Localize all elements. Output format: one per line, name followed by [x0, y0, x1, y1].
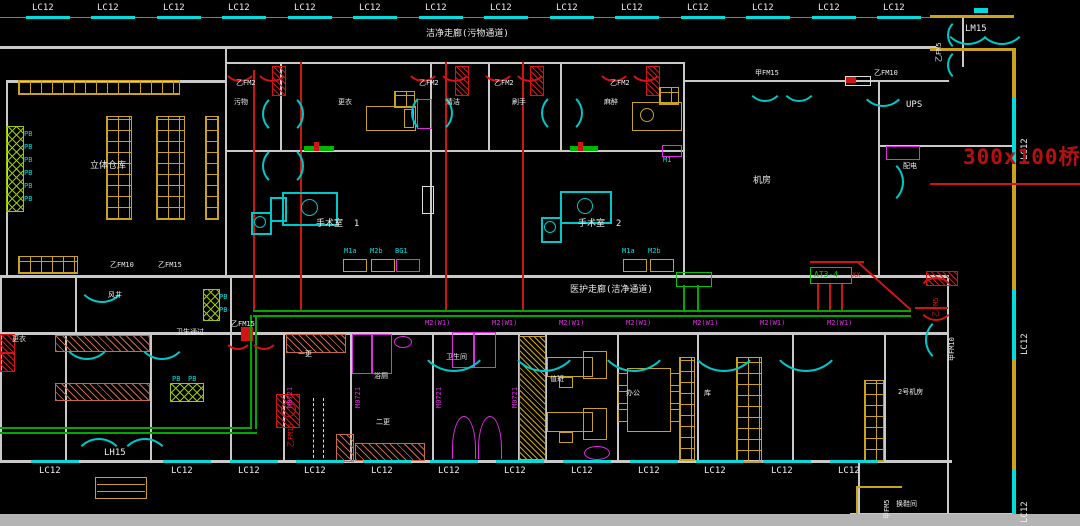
wall: [884, 335, 886, 462]
door-label: 乙FM5: [936, 42, 943, 62]
window-glyph: [26, 16, 70, 19]
door-code: M2(W1): [827, 320, 852, 327]
door-label: 乙FM2: [494, 80, 514, 87]
threshold-mark: [570, 146, 598, 151]
door-label: 乙FM2: [419, 80, 439, 87]
window-glyph: [830, 460, 878, 463]
door-arc: [686, 296, 762, 372]
door-label: 乙FM2: [236, 80, 256, 87]
window-label: LC12: [621, 4, 643, 13]
window-label: LC12: [818, 4, 840, 13]
chair: [618, 373, 628, 386]
window-label: LC12: [438, 467, 460, 476]
swing-door: [262, 93, 304, 135]
door-label: 乙FM5: [933, 297, 940, 317]
corridor-label: 医护走廊(洁净通道): [570, 286, 653, 295]
door-code: M0721: [287, 387, 294, 408]
room-label: 值班: [550, 376, 564, 383]
locker-row: [55, 383, 150, 401]
window-glyph: [696, 460, 744, 463]
sink: [394, 336, 412, 348]
wall-yellow: [856, 486, 858, 515]
window-label: LC12: [771, 467, 793, 476]
pass-window: [343, 259, 367, 272]
cable-tray: [0, 427, 252, 429]
pump-equipment: [203, 289, 220, 321]
wall: [683, 62, 685, 277]
shelf-rack: [736, 357, 762, 463]
window-glyph: [230, 460, 278, 463]
window-glyph: [163, 460, 211, 463]
fire-door-arc: [405, 46, 441, 82]
corridor-label: 洁净走廊(污物通道): [426, 30, 509, 39]
door-code: M0721: [436, 387, 443, 408]
window-glyph: [746, 16, 790, 19]
cable-tray: [683, 285, 685, 312]
room-label: 机房: [753, 177, 771, 186]
red-circuit-line: [930, 183, 1080, 185]
window-label: LC12: [838, 467, 860, 476]
room-label: 配电: [903, 163, 917, 170]
window: [1012, 470, 1016, 514]
window-glyph: [496, 460, 544, 463]
door-arc: [61, 308, 113, 360]
door-arc: [780, 64, 818, 102]
shelf-rack: [156, 116, 185, 220]
locker-row: [336, 434, 354, 462]
window-glyph: [484, 16, 528, 19]
room-label: 清洁: [446, 99, 460, 106]
electrical-box: [886, 146, 920, 160]
door-code: M0721: [355, 387, 362, 408]
red-circuit-line: [841, 283, 843, 311]
door-label: 乙FM2: [610, 80, 630, 87]
room-label: 手术室 1: [316, 220, 359, 229]
window-glyph: [288, 16, 332, 19]
window-glyph: [615, 16, 659, 19]
floorplan-canvas: LC12LC12LC12LC12LC12LC12LC12LC12LC12LC12…: [0, 0, 1080, 526]
room-label: 一更: [298, 351, 312, 358]
equipment-code: BG1: [395, 248, 408, 255]
window-label: LC12: [97, 4, 119, 13]
window-label: LC12: [556, 4, 578, 13]
door-arc: [976, 0, 1028, 45]
window-label: LC12: [687, 4, 709, 13]
entrance-label: LM15: [965, 25, 987, 34]
entrance-steps: [97, 491, 145, 492]
window-label: LC12: [39, 467, 61, 476]
fire-door-arc: [437, 46, 473, 82]
shelf-rack: [18, 256, 78, 274]
bed: [640, 108, 654, 122]
door-code: M2(W1): [693, 320, 718, 327]
pump-equipment: [170, 383, 204, 402]
equipment-code: PB: [188, 376, 196, 383]
room-label: 麻醉: [604, 99, 618, 106]
door-arc: [856, 158, 904, 206]
cable-tray: [0, 432, 257, 434]
door-arc: [768, 296, 844, 372]
window-label: LC12: [371, 467, 393, 476]
room-label: 2号机房: [898, 389, 923, 396]
room-label: 立体仓库: [90, 162, 126, 171]
door-label: 乙FM10: [110, 262, 134, 269]
door-arc: [947, 48, 981, 82]
equipment-code: M1a: [622, 248, 635, 255]
equipment-code: PB: [24, 131, 32, 138]
window-label: LC12: [504, 467, 526, 476]
fire-door-arc: [596, 46, 632, 82]
window-glyph: [812, 16, 856, 19]
door-label: 乙FM10: [874, 70, 898, 77]
fire-hydrant: [0, 353, 15, 372]
fire-door-arc: [628, 46, 664, 82]
pass-window: [371, 259, 395, 272]
door-label: 乙FM15: [158, 262, 182, 269]
shower-stall: [452, 416, 476, 459]
red-circuit-line: [300, 62, 302, 312]
room-label: 风井: [108, 292, 122, 299]
locker-row: [355, 443, 425, 461]
window-glyph: [430, 460, 478, 463]
desk: [583, 408, 607, 440]
equipment-code: M1a: [344, 248, 357, 255]
threshold-mark: [314, 142, 319, 151]
fire-door-arc: [480, 46, 516, 82]
fire-door-arc: [512, 46, 548, 82]
room-label: 浴厕: [374, 373, 388, 380]
window-label: LC12: [304, 467, 326, 476]
threshold-mark: [578, 142, 583, 151]
window-glyph: [31, 460, 79, 463]
threshold-mark: [304, 146, 334, 151]
window-label: LC12: [1021, 501, 1030, 523]
image-border-band: [0, 514, 1080, 526]
window-glyph: [91, 16, 135, 19]
conference-table: [627, 368, 671, 432]
door-arc: [119, 438, 171, 490]
fire-door-arc: [254, 46, 290, 82]
wall-yellow: [856, 486, 902, 488]
room-label: 卫生间: [446, 354, 467, 361]
swing-door: [541, 92, 583, 134]
window-glyph: [222, 16, 266, 19]
door-mark: [974, 8, 988, 13]
room-label: 更衣: [338, 99, 352, 106]
entrance-label: LH15: [104, 449, 126, 458]
room-label: 刷手: [512, 99, 526, 106]
window-label: LC12: [171, 467, 193, 476]
window-glyph: [550, 16, 594, 19]
chair: [559, 432, 573, 443]
window: [1012, 290, 1016, 360]
door-code: M2(W1): [559, 320, 584, 327]
window-label: LC12: [490, 4, 512, 13]
shelf-rack: [18, 80, 180, 95]
fire-door-arc: [222, 46, 258, 82]
room-label: 二更: [376, 419, 390, 426]
operating-table: [577, 198, 593, 214]
door-leaf: [422, 186, 434, 214]
pass-window: [623, 259, 647, 272]
window-glyph: [630, 460, 678, 463]
swing-door: [262, 145, 304, 187]
locker-row: [286, 334, 346, 353]
equipment-code: M2b: [648, 248, 661, 255]
window-glyph: [296, 460, 344, 463]
pump-equipment: [6, 126, 24, 212]
window-glyph: [877, 16, 921, 19]
bench-line: [323, 398, 325, 458]
window-label: LC12: [425, 4, 447, 13]
room-label: 卫生通过: [176, 329, 204, 336]
window-label: LC12: [704, 467, 726, 476]
pass-window: [396, 259, 420, 272]
window-label: LC12: [1021, 333, 1030, 355]
equipment-code: M2b: [370, 248, 383, 255]
toilet-stall: [352, 334, 372, 374]
shower-stall: [478, 416, 502, 459]
door-code: M2(W1): [760, 320, 785, 327]
equipment-code: PB: [172, 376, 180, 383]
equipment-code: M1: [663, 157, 671, 164]
window-label: LC12: [359, 4, 381, 13]
window-glyph: [363, 460, 411, 463]
cabinet: [659, 87, 679, 105]
window-label: LC12: [294, 4, 316, 13]
panel-note: XX: [852, 272, 860, 279]
panel-label: AT3-4: [814, 271, 838, 279]
door-arc: [859, 59, 907, 107]
shelf-rack: [864, 380, 884, 462]
room-label: 库: [704, 390, 711, 397]
window-glyph: [419, 16, 463, 19]
window-label: LC12: [752, 4, 774, 13]
window-label: LC12: [638, 467, 660, 476]
door-code: M2(W1): [626, 320, 651, 327]
window-label: LC12: [163, 4, 185, 13]
toilet-stall: [372, 334, 392, 374]
red-circuit-line: [253, 70, 255, 312]
door-label: 甲FM5: [884, 499, 891, 519]
room-label: 办公: [626, 390, 640, 397]
door-label: 乙FM15: [231, 321, 255, 328]
door-arc: [73, 438, 125, 490]
room-label: 手术室 2: [578, 220, 621, 229]
equipment-code: PB: [24, 170, 32, 177]
door-code: M2(W1): [425, 320, 450, 327]
bench-line: [313, 398, 315, 458]
pass-window: [650, 259, 674, 272]
door-arc: [596, 296, 672, 372]
door-mark: [846, 77, 856, 83]
door-code: M0721: [512, 387, 519, 408]
window-glyph: [681, 16, 725, 19]
shelf-rack: [679, 357, 695, 461]
door-arc: [506, 296, 582, 372]
equipment-code: PB: [24, 183, 32, 190]
equipment-code: PB: [24, 157, 32, 164]
window-label: LC12: [238, 467, 260, 476]
cable-tray-note: 300x100桥架: [963, 147, 1080, 168]
equipment-code: PB: [24, 196, 32, 203]
equipment-cart: [254, 216, 266, 228]
equipment-cart: [544, 221, 556, 233]
chair: [618, 409, 628, 422]
window-label: LC12: [228, 4, 250, 13]
equipment-code: PB: [219, 307, 227, 314]
red-circuit-line: [857, 261, 912, 311]
window-glyph: [353, 16, 397, 19]
window-label: LC12: [571, 467, 593, 476]
shelf-rack: [205, 116, 219, 220]
operating-table: [270, 197, 287, 222]
window-glyph: [763, 460, 811, 463]
room-label: 更衣: [12, 336, 26, 343]
window-glyph: [157, 16, 201, 19]
window-glyph: [563, 460, 611, 463]
window-label: LC12: [883, 4, 905, 13]
door-code: M2(W1): [492, 320, 517, 327]
distribution-panel: [676, 272, 712, 287]
equipment-code: PB: [24, 144, 32, 151]
equipment-code: PB: [219, 294, 227, 301]
door-label: 甲FM10: [949, 337, 956, 361]
room-label: 污物: [234, 99, 248, 106]
wall: [0, 46, 936, 49]
room-label: 换鞋间: [896, 501, 917, 508]
sink: [584, 446, 610, 460]
operating-table: [301, 199, 318, 216]
window-label: LC12: [32, 4, 54, 13]
wall: [225, 46, 227, 277]
door-label: 甲FM15: [755, 70, 779, 77]
room-label: UPS: [906, 101, 922, 110]
wall: [0, 275, 949, 278]
door-label: 乙FM15: [288, 423, 295, 447]
